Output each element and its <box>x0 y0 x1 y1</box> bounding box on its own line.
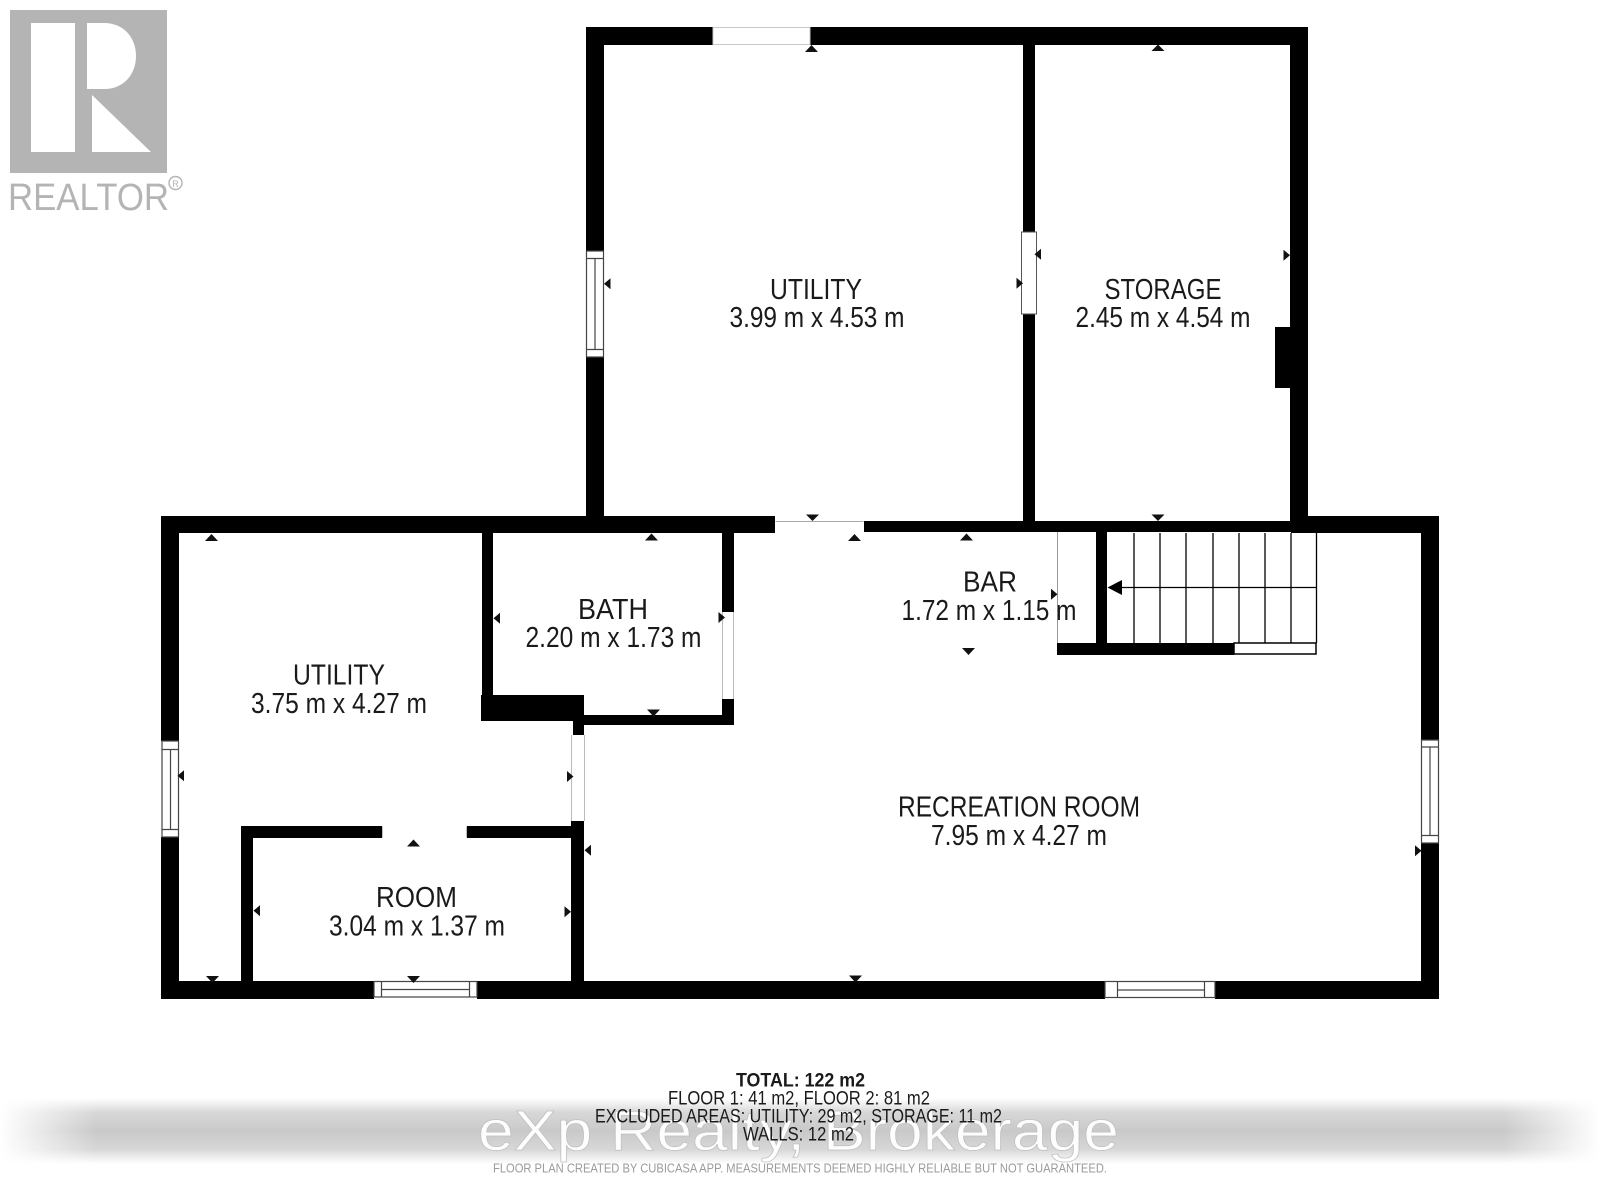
svg-text:3.75 m x 4.27 m: 3.75 m x 4.27 m <box>251 688 427 720</box>
svg-text:1.72 m x 1.15 m: 1.72 m x 1.15 m <box>902 595 1077 627</box>
svg-text:BAR: BAR <box>963 567 1017 599</box>
svg-text:FLOOR PLAN CREATED BY CUBICASA: FLOOR PLAN CREATED BY CUBICASA APP. MEAS… <box>493 1162 1107 1176</box>
svg-text:UTILITY: UTILITY <box>293 660 385 692</box>
svg-text:2.45 m x 4.54 m: 2.45 m x 4.54 m <box>1076 302 1251 334</box>
svg-text:2.20 m x 1.73 m: 2.20 m x 1.73 m <box>526 622 702 654</box>
svg-text:7.95 m x 4.27 m: 7.95 m x 4.27 m <box>931 820 1107 852</box>
svg-text:ROOM: ROOM <box>376 882 457 914</box>
svg-text:REALTOR: REALTOR <box>8 177 169 219</box>
svg-text:R: R <box>172 179 179 189</box>
svg-text:3.99 m x 4.53 m: 3.99 m x 4.53 m <box>730 302 905 334</box>
svg-text:WALLS: 12 m2: WALLS: 12 m2 <box>743 1124 854 1146</box>
svg-text:3.04 m x 1.37 m: 3.04 m x 1.37 m <box>329 911 505 943</box>
svg-text:RECREATION ROOM: RECREATION ROOM <box>898 792 1140 824</box>
